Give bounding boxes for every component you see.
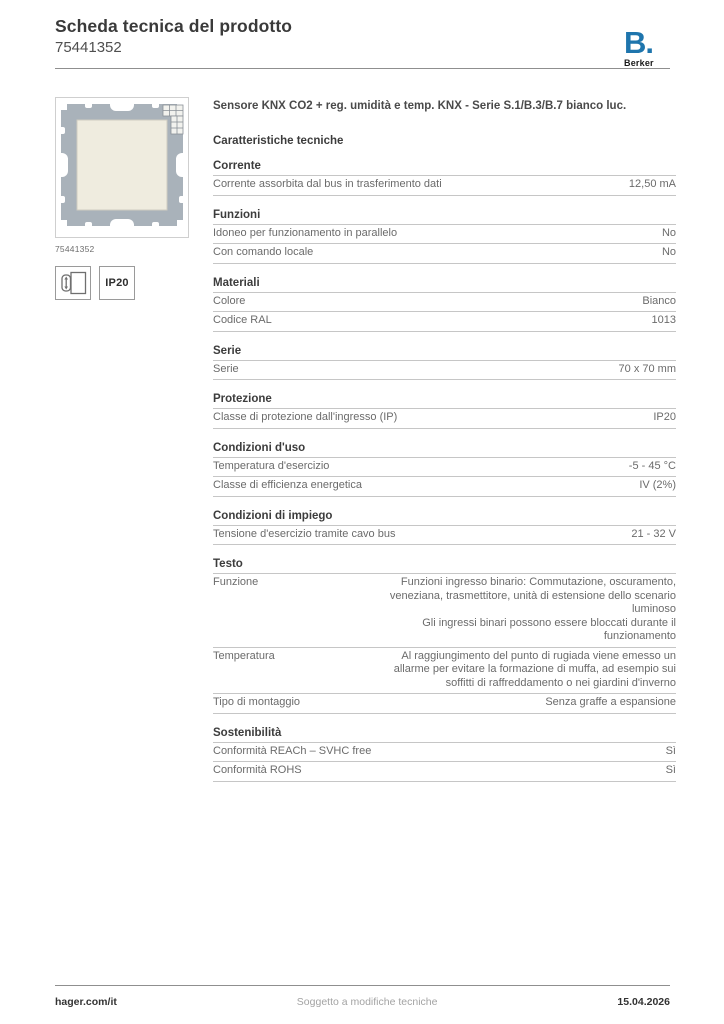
spec-section: Serie Serie 70 x 70 mm	[213, 345, 676, 381]
spec-row: Conformità REACh – SVHC free Sì	[213, 743, 676, 763]
product-title: Sensore KNX CO2 + reg. umidità e temp. K…	[213, 99, 676, 113]
spec-value: Sì	[666, 745, 676, 759]
spec-section: Materiali Colore Bianco Codice RAL 1013	[213, 277, 676, 332]
section-title: Condizioni di impiego	[213, 510, 676, 526]
product-image-column: 75441352 IP20	[55, 97, 190, 782]
spec-sections: Corrente Corrente assorbita dal bus in t…	[213, 160, 676, 782]
header: Scheda tecnica del prodotto 75441352 B. …	[55, 16, 670, 56]
datasheet-page: Scheda tecnica del prodotto 75441352 B. …	[0, 0, 724, 1024]
spec-section: Testo Funzione Funzioni ingresso binario…	[213, 558, 676, 714]
spec-row: Corrente assorbita dal bus in trasferime…	[213, 176, 676, 196]
spec-label: Conformità REACh – SVHC free	[213, 745, 371, 759]
spec-value: 70 x 70 mm	[619, 363, 676, 377]
spec-row: Tipo di montaggio Senza graffe a espansi…	[213, 694, 676, 714]
spec-row: Classe di efficienza energetica IV (2%)	[213, 477, 676, 497]
section-rows: Serie 70 x 70 mm	[213, 361, 676, 381]
footer-site: hager.com/it	[55, 996, 117, 1008]
spec-value: 12,50 mA	[629, 178, 676, 192]
spec-value: 21 - 32 V	[631, 528, 676, 542]
brand-logo: B. Berker	[624, 29, 670, 68]
spec-value: Al raggiungimento del punto di rugiada v…	[364, 650, 676, 691]
spec-value: Funzioni ingresso binario: Commutazione,…	[364, 576, 676, 644]
section-rows: Conformità REACh – SVHC free Sì Conformi…	[213, 743, 676, 782]
section-title: Materiali	[213, 277, 676, 293]
spec-value: 1013	[652, 314, 676, 328]
spec-section: Funzioni Idoneo per funzionamento in par…	[213, 209, 676, 264]
spec-row: Codice RAL 1013	[213, 312, 676, 332]
section-title: Corrente	[213, 160, 676, 176]
spec-value: IP20	[653, 411, 676, 425]
ip20-badge: IP20	[99, 266, 135, 300]
section-title: Funzioni	[213, 209, 676, 225]
spec-row: Temperatura Al raggiungimento del punto …	[213, 648, 676, 695]
spec-value: Bianco	[642, 295, 676, 309]
spec-row: Tensione d'esercizio tramite cavo bus 21…	[213, 526, 676, 546]
spec-value: -5 - 45 °C	[629, 460, 676, 474]
spec-row: Funzione Funzioni ingresso binario: Comm…	[213, 574, 676, 648]
section-rows: Temperatura d'esercizio -5 - 45 °C Class…	[213, 458, 676, 497]
section-title: Serie	[213, 345, 676, 361]
spec-label: Idoneo per funzionamento in parallelo	[213, 227, 397, 241]
spec-row: Serie 70 x 70 mm	[213, 361, 676, 381]
product-number: 75441352	[55, 39, 670, 56]
spec-label: Colore	[213, 295, 245, 309]
section-rows: Tensione d'esercizio tramite cavo bus 21…	[213, 526, 676, 546]
section-title: Condizioni d'uso	[213, 442, 676, 458]
footer-note: Soggetto a modifiche tecniche	[297, 996, 438, 1008]
spec-section: Corrente Corrente assorbita dal bus in t…	[213, 160, 676, 196]
product-badges: IP20	[55, 266, 190, 300]
section-rows: Corrente assorbita dal bus in trasferime…	[213, 176, 676, 196]
spec-value: No	[662, 246, 676, 260]
spec-value: Senza graffe a espansione	[545, 696, 676, 710]
wall-sensor-illustration	[56, 98, 188, 237]
spec-column: Sensore KNX CO2 + reg. umidità e temp. K…	[213, 97, 676, 782]
footer-date: 15.04.2026	[617, 996, 670, 1008]
spec-row: Classe di protezione dall'ingresso (IP) …	[213, 409, 676, 429]
spec-section: Condizioni d'uso Temperatura d'esercizio…	[213, 442, 676, 497]
spec-label: Serie	[213, 363, 239, 377]
spec-row: Idoneo per funzionamento in parallelo No	[213, 225, 676, 245]
header-divider	[55, 68, 670, 69]
spec-label: Tipo di montaggio	[213, 696, 300, 710]
berker-logo-icon: B.	[624, 29, 670, 57]
spec-label: Temperatura d'esercizio	[213, 460, 329, 474]
spec-label: Conformità ROHS	[213, 764, 302, 778]
spec-row: Colore Bianco	[213, 293, 676, 313]
spec-label: Classe di efficienza energetica	[213, 479, 362, 493]
spec-value: Sì	[666, 764, 676, 778]
spec-row: Con comando locale No	[213, 244, 676, 264]
section-rows: Funzione Funzioni ingresso binario: Comm…	[213, 574, 676, 714]
page-title: Scheda tecnica del prodotto	[55, 16, 670, 37]
spec-label: Funzione	[213, 576, 258, 590]
spec-value: No	[662, 227, 676, 241]
flush-mount-icon	[60, 271, 87, 295]
image-caption: 75441352	[55, 244, 190, 254]
specs-heading: Caratteristiche tecniche	[213, 135, 676, 147]
spec-label: Classe di protezione dall'ingresso (IP)	[213, 411, 397, 425]
section-title: Protezione	[213, 393, 676, 409]
spec-section: Sostenibilità Conformità REACh – SVHC fr…	[213, 727, 676, 782]
main-content: 75441352 IP20 Sensore KNX CO2 +	[55, 97, 676, 782]
section-rows: Classe di protezione dall'ingresso (IP) …	[213, 409, 676, 429]
ip20-label: IP20	[105, 277, 128, 289]
spec-section: Protezione Classe di protezione dall'ing…	[213, 393, 676, 429]
section-rows: Idoneo per funzionamento in parallelo No…	[213, 225, 676, 264]
spec-label: Temperatura	[213, 650, 275, 664]
spec-label: Con comando locale	[213, 246, 313, 260]
flush-mount-badge	[55, 266, 91, 300]
footer: hager.com/it Soggetto a modifiche tecnic…	[55, 985, 670, 1024]
spec-label: Tensione d'esercizio tramite cavo bus	[213, 528, 395, 542]
spec-label: Corrente assorbita dal bus in trasferime…	[213, 178, 442, 192]
section-rows: Colore Bianco Codice RAL 1013	[213, 293, 676, 332]
section-title: Testo	[213, 558, 676, 574]
section-title: Sostenibilità	[213, 727, 676, 743]
spec-label: Codice RAL	[213, 314, 272, 328]
spec-value: IV (2%)	[639, 479, 676, 493]
product-image	[55, 97, 189, 238]
spec-row: Conformità ROHS Sì	[213, 762, 676, 782]
brand-name: Berker	[624, 58, 670, 68]
spec-section: Condizioni di impiego Tensione d'eserciz…	[213, 510, 676, 546]
spec-row: Temperatura d'esercizio -5 - 45 °C	[213, 458, 676, 478]
